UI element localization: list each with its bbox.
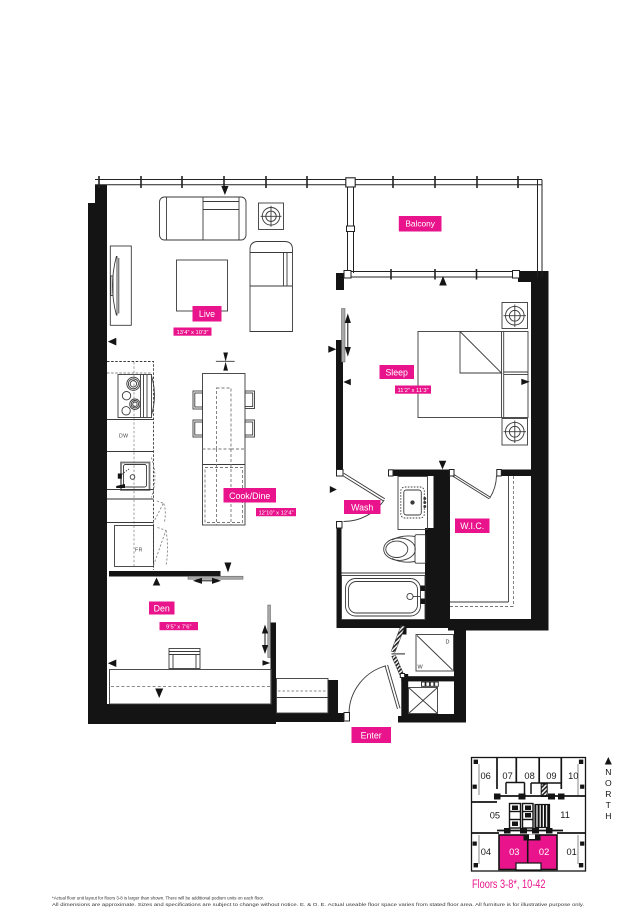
svg-text:H: H xyxy=(605,811,611,821)
svg-text:T: T xyxy=(606,800,612,810)
svg-text:W: W xyxy=(418,665,424,671)
svg-text:08: 08 xyxy=(524,771,534,781)
svg-text:*Actual floor unit layout for: *Actual floor unit layout for floors 3-8… xyxy=(52,896,264,901)
svg-text:Floors 3-8*, 10-42: Floors 3-8*, 10-42 xyxy=(472,877,546,891)
svg-text:DW: DW xyxy=(119,434,128,440)
svg-text:Live: Live xyxy=(199,309,215,319)
svg-text:01: 01 xyxy=(567,847,577,857)
svg-text:Wash: Wash xyxy=(351,503,373,513)
svg-text:R: R xyxy=(605,789,611,799)
svg-text:W.I.C.: W.I.C. xyxy=(460,521,484,531)
svg-text:N: N xyxy=(605,767,611,777)
svg-text:05: 05 xyxy=(490,811,500,821)
svg-text:Balcony: Balcony xyxy=(405,219,435,229)
svg-text:11: 11 xyxy=(560,810,570,820)
svg-text:03: 03 xyxy=(509,847,519,857)
svg-text:13’4” x 10’3”: 13’4” x 10’3” xyxy=(177,330,209,336)
svg-text:Enter: Enter xyxy=(361,731,382,741)
svg-text:06: 06 xyxy=(481,771,491,781)
svg-text:02: 02 xyxy=(539,847,549,857)
svg-text:All dimensions are approximate: All dimensions are approximate. Sizes an… xyxy=(52,902,584,907)
svg-text:Den: Den xyxy=(154,603,170,613)
svg-text:D: D xyxy=(446,640,450,646)
svg-text:09: 09 xyxy=(546,771,556,781)
svg-text:Cook/Dine: Cook/Dine xyxy=(229,491,270,501)
svg-text:O: O xyxy=(605,778,612,788)
svg-text:9’5” x 7’6”: 9’5” x 7’6” xyxy=(166,625,192,631)
svg-text:11’2” x 11’3”: 11’2” x 11’3” xyxy=(397,388,428,394)
svg-text:Sleep: Sleep xyxy=(385,367,408,377)
svg-text:12’10” x 12’4”: 12’10” x 12’4” xyxy=(258,511,293,517)
svg-text:FR: FR xyxy=(135,548,143,554)
svg-text:07: 07 xyxy=(502,771,512,781)
svg-text:10: 10 xyxy=(568,771,578,781)
svg-text:04: 04 xyxy=(481,847,491,857)
